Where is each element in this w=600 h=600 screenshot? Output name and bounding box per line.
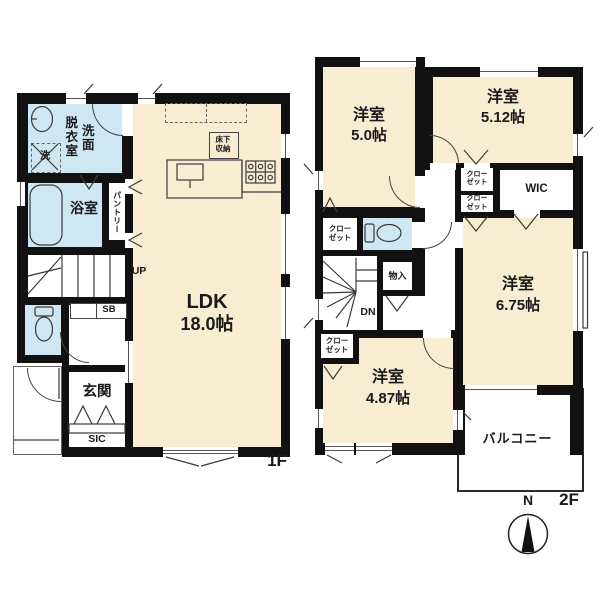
ldk-name: LDK: [133, 291, 281, 313]
bedroom-6-75-size: 6.75帖: [463, 297, 573, 315]
closet-bottom-label: クロー ゼット: [321, 334, 353, 358]
shoe-box-label: SB: [95, 303, 123, 317]
balcony-window: [465, 385, 537, 395]
closet-line2: ゼット: [467, 204, 488, 212]
closet-line2: ゼット: [467, 179, 488, 187]
washroom-label-left: 脱衣室: [62, 108, 78, 166]
sliding-window: [325, 443, 354, 455]
window: [281, 287, 290, 339]
vent-window: [66, 93, 86, 104]
floor2-top-step: [425, 57, 583, 67]
window: [281, 214, 290, 274]
closet-line2: ゼット: [326, 346, 349, 355]
window: [573, 249, 583, 331]
door-opening: [514, 210, 540, 218]
kitchen-cupboard: [165, 103, 247, 123]
bedroom-6-75-name: 洋室: [463, 276, 573, 294]
window: [360, 57, 416, 67]
closet-line1: クロー: [467, 171, 488, 179]
bedroom-4-87-name: 洋室: [323, 369, 453, 387]
floorplan-canvas: 脱衣室 洗面 洗 浴室 パントリー UP SB 玄関 SIC LDK 18.0帖…: [0, 0, 600, 600]
pantry-opening: [125, 179, 133, 194]
window: [453, 410, 463, 430]
sliding-door: [125, 341, 133, 383]
dn-label: DN: [356, 306, 380, 319]
washroom-label-right: 洗面: [79, 117, 94, 159]
window: [573, 134, 583, 156]
bedroom-5-0-size: 5.0帖: [323, 127, 415, 145]
bathroom-label: 浴室: [56, 199, 112, 217]
hall-2f-lower: [383, 296, 425, 330]
north-label: N: [517, 492, 539, 509]
sic-label: SIC: [69, 432, 125, 446]
compass-icon: [509, 515, 548, 554]
laundry-label: 洗: [31, 143, 59, 171]
window: [480, 67, 538, 77]
pantry-opening: [125, 233, 133, 248]
stairs-1f-area: [28, 255, 125, 297]
closet-mid-label: クロー ゼット: [323, 218, 357, 250]
closet-line1: クロー: [467, 195, 488, 203]
balcony-label: バルコニー: [465, 430, 570, 448]
bedroom-5-12-name: 洋室: [433, 89, 573, 107]
bay-window-outline: [583, 252, 588, 328]
bath-window: [17, 182, 25, 206]
vent-window: [138, 93, 155, 104]
entrance-label: 玄関: [67, 383, 127, 401]
cupboard-divider: [206, 104, 207, 122]
sliding-window: [163, 447, 238, 457]
door-opening: [430, 163, 456, 170]
room-toilet-1f: [25, 305, 61, 355]
door-opening: [455, 222, 463, 248]
floor1-label: 1F: [260, 451, 294, 471]
door-opening: [423, 330, 451, 338]
shoe-box-divider: [71, 304, 97, 318]
closet-line2: ゼット: [329, 234, 352, 243]
closet-upper-label: クロー ゼット: [461, 167, 493, 191]
window: [315, 299, 323, 320]
ldk-size: 18.0帖: [133, 314, 281, 334]
floor-storage-label: 床下 収納: [209, 132, 237, 157]
bedroom-4-87-size: 4.87帖: [323, 390, 453, 408]
bedroom-5-12-size: 5.12帖: [433, 109, 573, 127]
window: [281, 134, 290, 158]
up-label: UP: [126, 265, 152, 278]
sliding-window: [356, 443, 392, 455]
bedroom-5-0-name: 洋室: [323, 107, 415, 125]
room-toilet-2f: [363, 218, 412, 250]
window: [315, 409, 323, 428]
pantry-label: パントリー: [108, 184, 126, 240]
hall-2f: [425, 170, 455, 330]
wic-label: WIC: [500, 170, 573, 210]
floor-storage-line2: 収納: [216, 145, 231, 154]
floor2-label: 2F: [552, 490, 586, 510]
window: [315, 171, 323, 190]
door-opening: [122, 104, 133, 136]
closet-lower-label: クロー ゼット: [461, 194, 493, 213]
storage-label: 物入: [383, 262, 412, 290]
room-ldk: [133, 104, 281, 447]
